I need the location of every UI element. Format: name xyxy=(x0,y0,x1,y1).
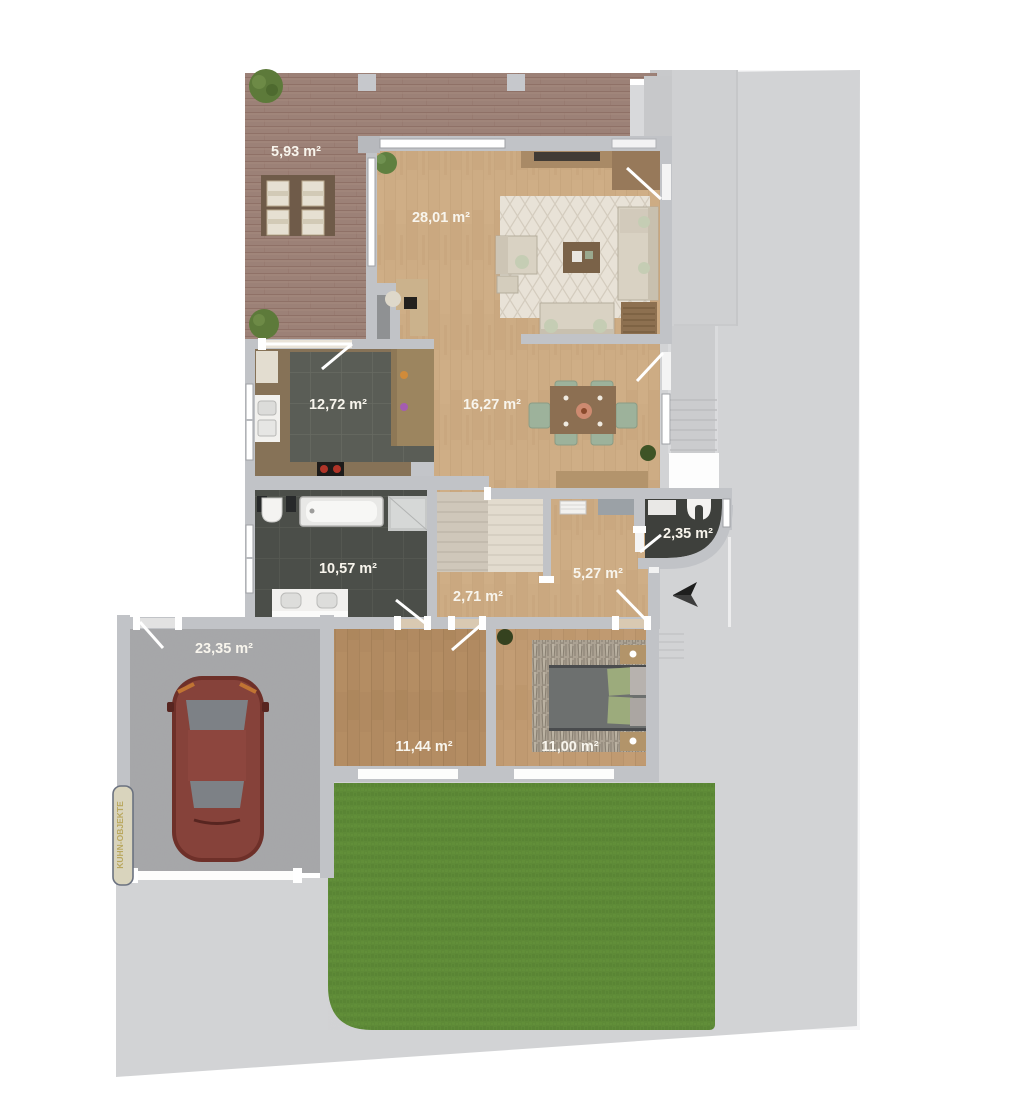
svg-text:10,57 m²: 10,57 m² xyxy=(319,561,377,577)
svg-text:11,44 m²: 11,44 m² xyxy=(395,739,452,755)
svg-text:KUHN-OBJEKTE: KUHN-OBJEKTE xyxy=(115,801,125,869)
svg-text:23,35 m²: 23,35 m² xyxy=(195,641,253,657)
svg-text:12,72 m²: 12,72 m² xyxy=(309,397,367,413)
svg-text:16,27 m²: 16,27 m² xyxy=(463,397,521,413)
svg-text:5,93 m²: 5,93 m² xyxy=(271,144,321,160)
svg-text:2,71 m²: 2,71 m² xyxy=(453,589,503,605)
svg-text:28,01 m²: 28,01 m² xyxy=(412,210,470,226)
svg-text:5,27 m²: 5,27 m² xyxy=(573,566,623,582)
svg-text:2,35 m²: 2,35 m² xyxy=(663,526,713,542)
svg-text:11,00 m²: 11,00 m² xyxy=(541,739,598,755)
